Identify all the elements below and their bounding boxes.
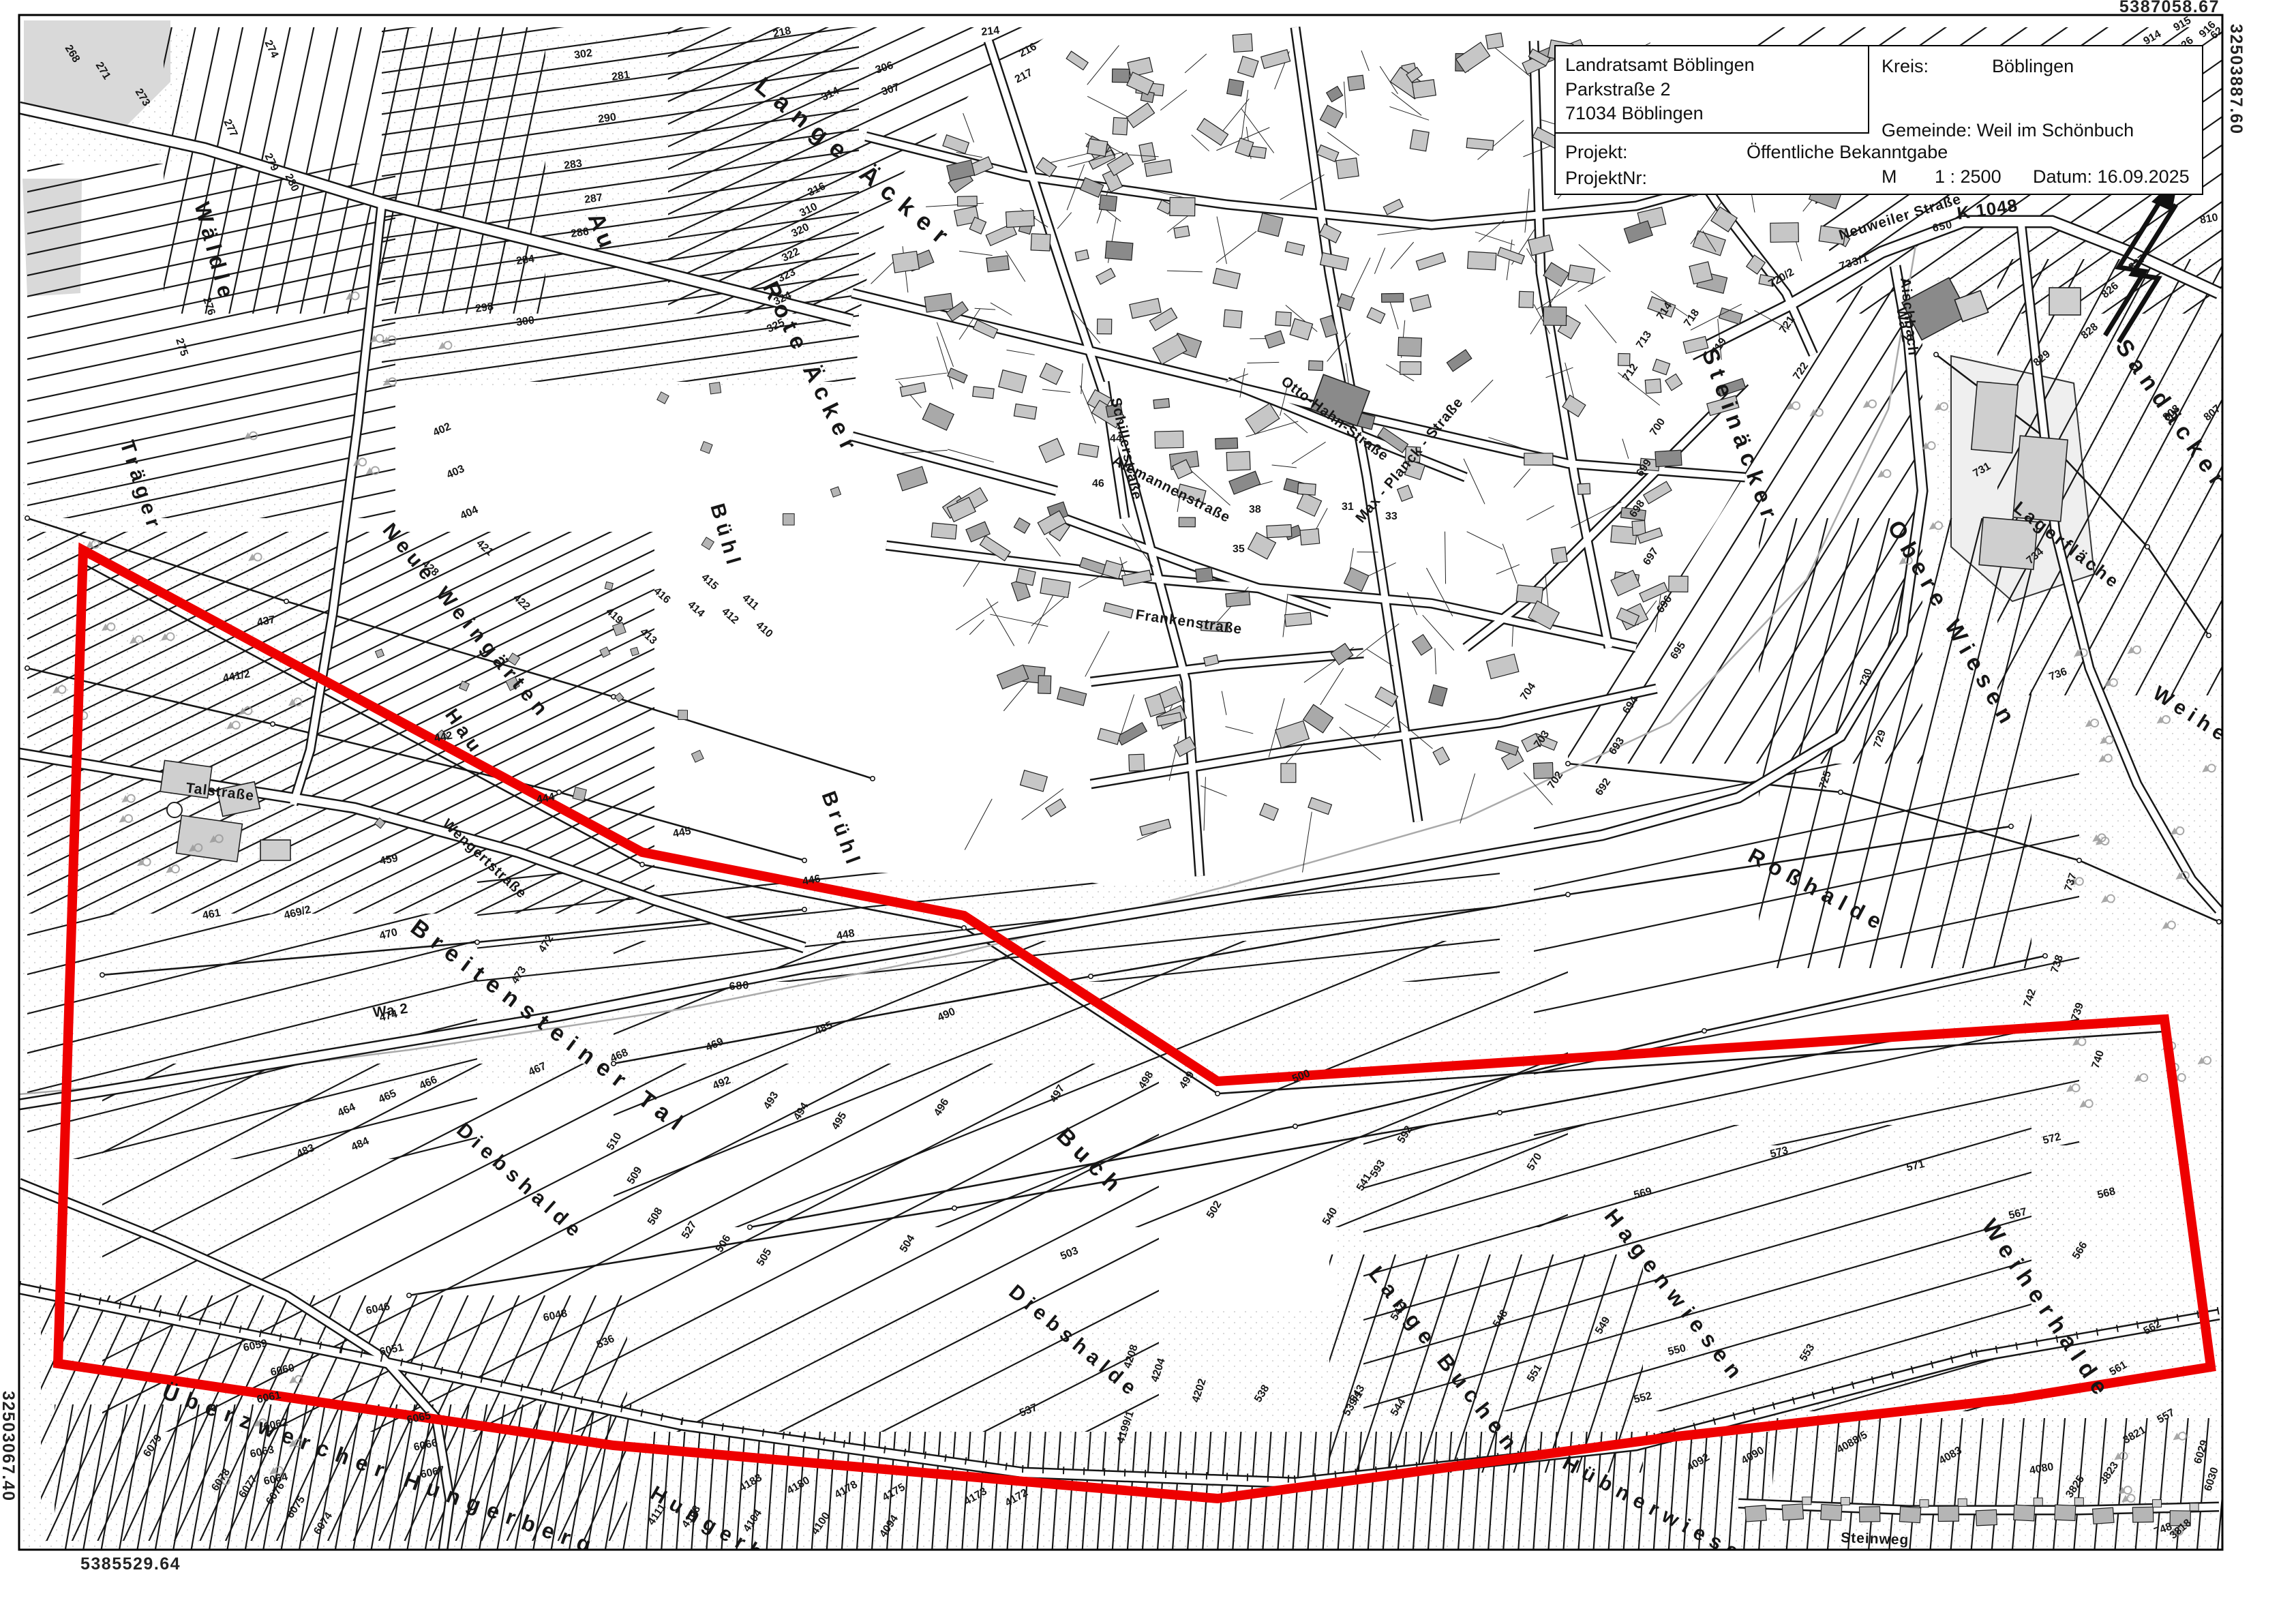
coordinate-bottom-left-easting: 32503067.40: [0, 1391, 18, 1501]
shed-building: [605, 582, 613, 590]
building: [1113, 117, 1128, 135]
building: [1410, 130, 1429, 151]
building: [1153, 399, 1170, 409]
building: [1398, 337, 1422, 357]
garage-building: [1802, 1497, 1811, 1505]
embankment-tick: [1295, 1475, 1295, 1483]
building: [1645, 379, 1661, 393]
building: [1174, 226, 1190, 238]
embankment-tick: [1315, 1473, 1316, 1481]
building: [1413, 80, 1436, 98]
datum-label: Datum:: [2033, 166, 2092, 187]
garage-building: [1958, 1499, 1967, 1506]
building: [1087, 139, 1108, 157]
map-small-label: 680: [729, 980, 750, 993]
building: [1233, 34, 1252, 52]
building: [1466, 138, 1494, 151]
parcel-number: 44: [1110, 433, 1122, 445]
kreis-row: Kreis:Böblingen: [1882, 56, 2074, 77]
garage-building: [1841, 1497, 1849, 1505]
street-name-label: Steinweg: [1841, 1530, 1909, 1548]
building: [1382, 293, 1404, 302]
building: [957, 196, 977, 207]
gemeinde-row: Gemeinde: Weil im Schönbuch: [1882, 120, 2134, 141]
building: [1821, 1505, 1842, 1521]
garage-building: [2153, 1500, 2162, 1507]
scale-row: M1 : 2500: [1882, 166, 2002, 187]
building: [1485, 33, 1503, 49]
building: [1281, 764, 1296, 783]
building: [1038, 676, 1051, 693]
building: [1105, 241, 1133, 260]
building: [1745, 1505, 1766, 1522]
building: [1669, 576, 1688, 592]
embankment-tick: [1335, 1471, 1335, 1479]
building: [1006, 211, 1034, 228]
building: [931, 523, 956, 539]
grey-area: [22, 179, 82, 297]
building: [1618, 353, 1630, 365]
shed-building: [573, 787, 586, 800]
building: [1224, 310, 1243, 328]
building: [2014, 1505, 2035, 1521]
building: [1400, 361, 1421, 374]
building: [260, 840, 290, 860]
building: [1336, 158, 1359, 179]
building: [1899, 1507, 1920, 1523]
building: [1112, 69, 1129, 82]
building: [1782, 1504, 1803, 1520]
building: [1155, 431, 1183, 448]
title-block-address: Landratsamt Böblingen Parkstraße 2 71034…: [1556, 46, 1869, 134]
building: [1976, 1509, 1997, 1525]
building: [1516, 585, 1543, 604]
building: [1139, 142, 1155, 162]
building: [1097, 319, 1111, 334]
building: [1215, 438, 1238, 449]
building: [1468, 252, 1496, 270]
building: [1275, 312, 1291, 326]
coordinate-bottom-left-northing: 5385529.64: [80, 1554, 181, 1574]
parcel-number: 214: [981, 25, 1000, 38]
building: [2055, 1505, 2076, 1520]
parcel-number: 46: [1092, 478, 1104, 490]
building: [1099, 195, 1117, 211]
shed-building: [678, 710, 688, 720]
building: [1655, 450, 1682, 466]
scale-value: 1 : 2500: [1935, 166, 2002, 187]
parcel-number: 35: [1233, 543, 1245, 555]
building: [973, 387, 994, 399]
building: [1770, 223, 1799, 243]
garage-building: [2190, 1503, 2199, 1511]
building: [1938, 1506, 1959, 1521]
projekt-label: Projekt:: [1565, 142, 1628, 162]
building: [1300, 528, 1320, 545]
garage-building: [2034, 1498, 2042, 1505]
gemeinde-label: Gemeinde:: [1882, 120, 1972, 140]
building: [986, 256, 1009, 272]
map-generated-content: WäldleLange ÄckerAuRote ÄckerBühlHauTräg…: [0, 0, 2296, 1624]
address-line2: Parkstraße 2: [1565, 78, 1858, 102]
parcel-number: 33: [1385, 511, 1398, 522]
building: [2132, 1507, 2153, 1522]
building: [1533, 763, 1553, 779]
garage-building: [1920, 1500, 1929, 1507]
building: [2049, 288, 2081, 315]
building: [1519, 291, 1533, 307]
building: [1179, 517, 1195, 527]
projekt-value: Öffentliche Bekanntgabe: [1747, 142, 1948, 163]
building: [1031, 234, 1051, 251]
datum-row: Datum: 16.09.2025: [2033, 166, 2190, 187]
building: [1170, 197, 1195, 215]
building: [1348, 75, 1365, 91]
projekt-row: Projekt: Öffentliche Bekanntgabe: [1565, 142, 1628, 163]
map-layers: WäldleLange ÄckerAuRote ÄckerBühlHauTräg…: [0, 0, 2296, 1624]
building: [892, 251, 920, 273]
gemeinde-value: Weil im Schönbuch: [1977, 120, 2134, 140]
map-canvas: WäldleLange ÄckerAuRote ÄckerBühlHauTräg…: [0, 0, 2296, 1624]
building: [1309, 361, 1323, 370]
building: [1285, 612, 1312, 627]
building: [924, 293, 953, 312]
title-block: Landratsamt Böblingen Parkstraße 2 71034…: [1554, 45, 2203, 195]
building: [1297, 483, 1316, 495]
garage-building: [2074, 1498, 2083, 1505]
building: [1196, 568, 1213, 583]
address-line1: Landratsamt Böblingen: [1565, 53, 1858, 78]
building: [1129, 754, 1145, 771]
coordinate-top-right-northing: 5387058.67: [2119, 0, 2220, 16]
building: [1227, 79, 1244, 96]
building: [1250, 146, 1266, 158]
building: [177, 815, 243, 862]
building: [1860, 1507, 1880, 1522]
building: [1577, 483, 1590, 494]
parcel-number: 38: [1249, 504, 1261, 515]
coordinate-top-right-easting: 32503887.60: [2226, 24, 2246, 134]
building: [1972, 382, 2018, 453]
shed-building: [709, 382, 721, 394]
address-line3: 71034 Böblingen: [1565, 102, 1858, 126]
building: [1267, 525, 1292, 538]
projektnr-label: ProjektNr:: [1565, 168, 1647, 188]
cadastral-map-page: WäldleLange ÄckerAuRote ÄckerBühlHauTräg…: [0, 0, 2296, 1624]
building: [1524, 453, 1553, 466]
projektnr-row: ProjektNr:: [1565, 168, 1647, 189]
building: [1543, 307, 1567, 325]
building: [1552, 547, 1568, 563]
shed-building: [783, 513, 795, 525]
silo-building: [167, 802, 182, 817]
building: [1226, 592, 1250, 607]
kreis-label: Kreis:: [1882, 56, 1992, 77]
parcel-number: 31: [1342, 501, 1354, 513]
building: [2093, 1507, 2114, 1524]
kreis-value: Böblingen: [1992, 56, 2074, 76]
scale-label: M: [1882, 166, 1935, 187]
datum-value: 16.09.2025: [2098, 166, 2190, 187]
building: [1226, 451, 1250, 470]
